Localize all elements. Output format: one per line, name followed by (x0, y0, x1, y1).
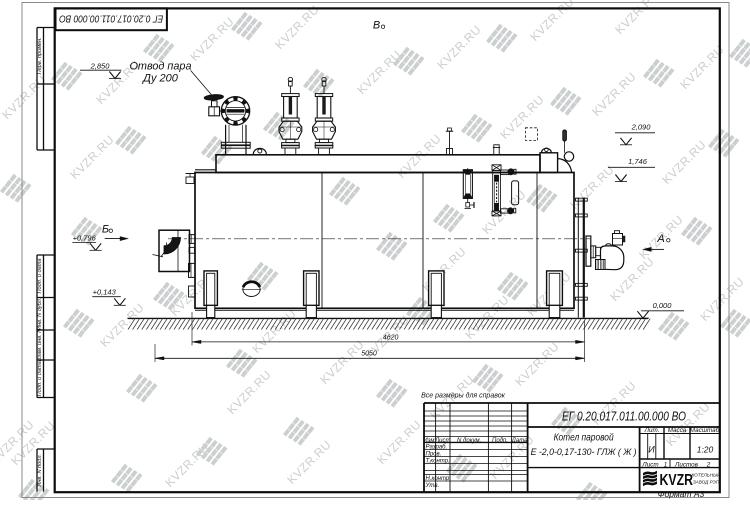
svg-text:KVZR: KVZR (660, 472, 694, 489)
svg-text:Разраб.: Разраб. (426, 445, 448, 451)
svg-text:Формат А3: Формат А3 (658, 489, 705, 499)
svg-text:Масса: Масса (668, 427, 687, 434)
svg-text:1,746: 1,746 (628, 157, 648, 166)
svg-text:Подп.: Подп. (492, 438, 508, 444)
svg-text:Все размеры для справок: Все размеры для справок (421, 392, 506, 400)
svg-text:Н.контр.: Н.контр. (426, 476, 451, 482)
svg-text:Инв. N дубл.: Инв. N дубл. (37, 298, 43, 330)
svg-text:Отвод пара: Отвод пара (130, 61, 192, 73)
svg-text:Б: Б (102, 224, 109, 236)
svg-text:Перв. примен.: Перв. примен. (37, 37, 43, 74)
svg-text:Пров.: Пров. (426, 451, 442, 457)
svg-text:+0,796: +0,796 (73, 234, 97, 243)
svg-text:Подп. и дата: Подп. и дата (37, 258, 43, 293)
svg-text:Т.контр.: Т.контр. (426, 459, 450, 465)
svg-text:Утв.: Утв. (425, 483, 440, 489)
svg-text:Инв. N подл.: Инв. N подл. (37, 454, 43, 487)
svg-text:Масштаб: Масштаб (690, 426, 720, 434)
svg-text:А: А (656, 233, 664, 245)
svg-text:Подп. и дата: Подп. и дата (37, 361, 43, 396)
svg-text:В: В (373, 20, 380, 32)
svg-text:Лист: Лист (641, 462, 658, 469)
svg-text:2,090: 2,090 (631, 123, 652, 132)
svg-text:ЕГ 0.20.017.011.00.000 ВО: ЕГ 0.20.017.011.00.000 ВО (562, 410, 686, 424)
svg-text:ЕГ 0.20.017.011.00.000 ВО: ЕГ 0.20.017.011.00.000 ВО (59, 12, 163, 24)
svg-text:Дата: Дата (511, 438, 528, 444)
svg-text:Лит.: Лит. (644, 427, 660, 434)
svg-text:2: 2 (706, 462, 711, 469)
svg-text:+0,143: +0,143 (93, 288, 117, 297)
svg-text:Лист: Лист (434, 438, 450, 444)
svg-text:И: И (648, 445, 655, 455)
svg-text:4620: 4620 (383, 334, 399, 341)
svg-text:2,850: 2,850 (90, 62, 111, 71)
svg-text:КОТЕЛЬНЫЙ: КОТЕЛЬНЫЙ (692, 471, 722, 478)
svg-text:N докум.: N докум. (457, 438, 481, 444)
svg-text:1: 1 (664, 462, 668, 469)
svg-text:1:20: 1:20 (697, 445, 714, 455)
svg-text:Е -2,0-0,17-130- ГЛЖ ( Ж ): Е -2,0-0,17-130- ГЛЖ ( Ж ) (531, 447, 637, 458)
svg-text:Листов: Листов (674, 462, 699, 469)
svg-text:0,000: 0,000 (653, 301, 673, 310)
svg-text:Котел паровой: Котел паровой (554, 433, 614, 444)
svg-text:Взам. инв. N: Взам. инв. N (37, 328, 43, 362)
svg-text:5050: 5050 (361, 351, 377, 358)
svg-text:ЗАВОД РЭП: ЗАВОД РЭП (693, 480, 720, 485)
svg-text:Ду 200: Ду 200 (141, 73, 179, 85)
